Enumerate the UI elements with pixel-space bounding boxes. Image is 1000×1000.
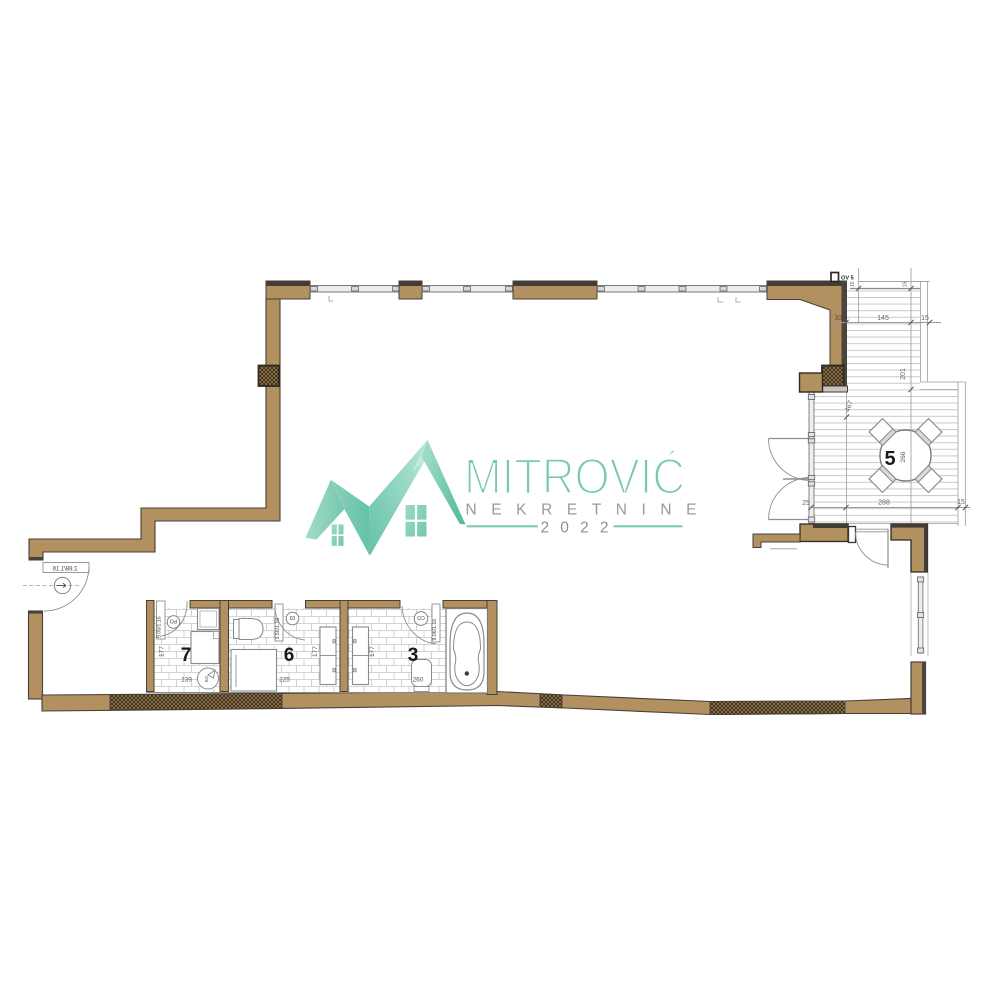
svg-text:288: 288 bbox=[878, 500, 890, 507]
svg-text:139: 139 bbox=[181, 677, 192, 684]
svg-text:03: 03 bbox=[290, 614, 296, 620]
svg-text:25: 25 bbox=[802, 500, 810, 507]
svg-text:177: 177 bbox=[159, 646, 166, 657]
svg-text:9.06/1.16: 9.06/1.16 bbox=[432, 619, 438, 641]
svg-text:3: 3 bbox=[408, 645, 419, 666]
svg-text:266: 266 bbox=[900, 451, 907, 462]
svg-text:225: 225 bbox=[279, 677, 290, 684]
svg-text:MITROVIĆ: MITROVIĆ bbox=[464, 449, 685, 505]
svg-text:15: 15 bbox=[957, 499, 965, 506]
svg-text:6: 6 bbox=[284, 645, 295, 666]
svg-text:15: 15 bbox=[903, 281, 909, 287]
svg-text:201: 201 bbox=[900, 368, 907, 380]
svg-text:9.06/1.16: 9.06/1.16 bbox=[157, 616, 163, 638]
svg-text:5: 5 bbox=[884, 448, 895, 470]
svg-text:145: 145 bbox=[877, 315, 889, 322]
svg-text:177: 177 bbox=[369, 646, 376, 657]
svg-text:2.88/1.16: 2.88/1.16 bbox=[52, 567, 78, 573]
svg-text:BO: BO bbox=[204, 675, 209, 682]
svg-text:15: 15 bbox=[921, 315, 929, 322]
svg-text:15: 15 bbox=[850, 281, 856, 287]
svg-text:33: 33 bbox=[835, 315, 843, 322]
svg-text:OV 5: OV 5 bbox=[841, 276, 854, 282]
svg-text:PO: PO bbox=[170, 618, 177, 624]
svg-text:260: 260 bbox=[413, 677, 424, 684]
svg-text:177: 177 bbox=[312, 646, 319, 657]
svg-text:7: 7 bbox=[181, 645, 192, 666]
svg-text:CO: CO bbox=[417, 614, 425, 620]
svg-text:3.56/1.16: 3.56/1.16 bbox=[275, 618, 281, 640]
